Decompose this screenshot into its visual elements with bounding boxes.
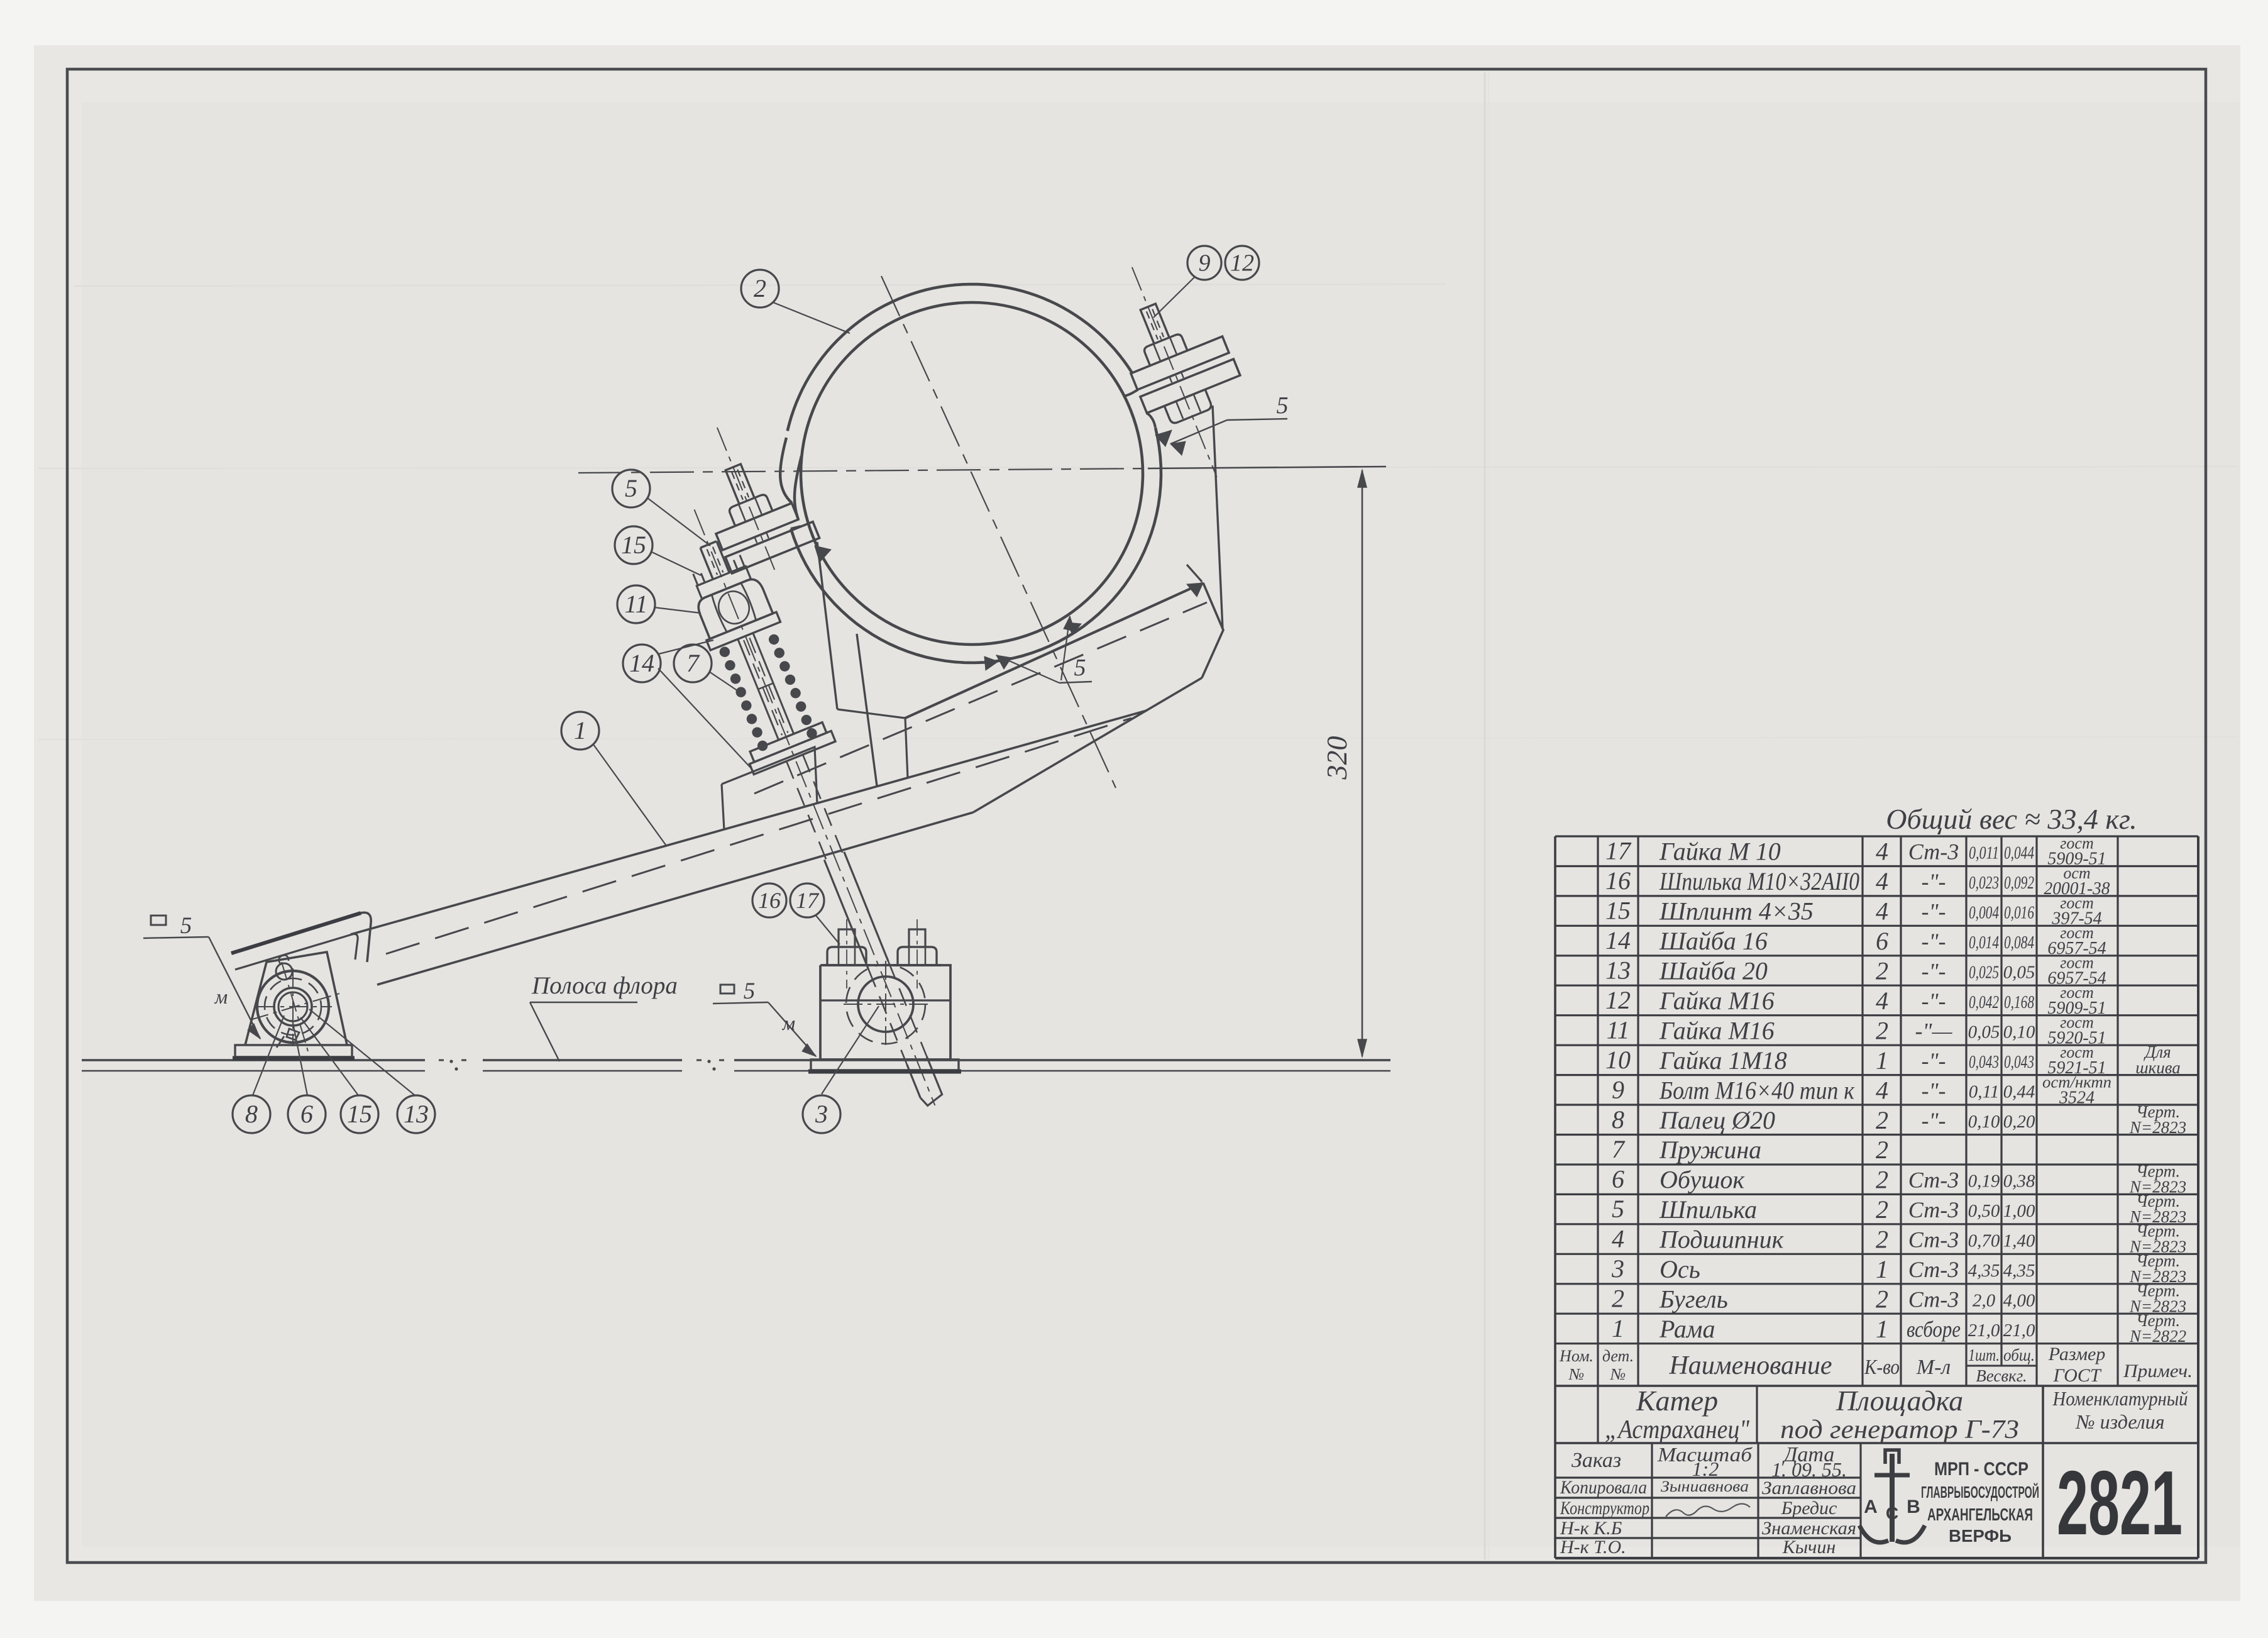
svg-text:Пружина: Пружина xyxy=(1659,1136,1761,1164)
svg-text:5: 5 xyxy=(180,913,192,939)
svg-text:1: 1 xyxy=(1876,1315,1888,1343)
svg-text:0,043: 0,043 xyxy=(1969,1052,1999,1072)
svg-text:№: № xyxy=(1610,1365,1626,1383)
svg-text:под генератор Г-73: под генератор Г-73 xyxy=(1780,1415,2019,1444)
svg-text:-"-: -"- xyxy=(1921,988,1946,1014)
svg-text:4: 4 xyxy=(1876,897,1888,926)
svg-text:Шайба 20: Шайба 20 xyxy=(1659,957,1768,985)
svg-text:Болт М16×40 тип к: Болт М16×40 тип к xyxy=(1659,1076,1854,1104)
svg-text:Бугель: Бугель xyxy=(1659,1285,1728,1314)
svg-text:0,023: 0,023 xyxy=(1969,873,1999,893)
svg-text:17: 17 xyxy=(796,888,820,913)
svg-text:15: 15 xyxy=(1605,897,1631,925)
svg-text:0,20: 0,20 xyxy=(2003,1112,2035,1132)
svg-text:К-во: К-во xyxy=(1864,1356,1900,1379)
svg-text:Рама: Рама xyxy=(1659,1315,1715,1343)
svg-text:14: 14 xyxy=(629,649,654,677)
svg-text:5: 5 xyxy=(1612,1195,1624,1223)
svg-text:0,014: 0,014 xyxy=(1969,932,1999,953)
svg-text:1: 1 xyxy=(574,716,586,744)
svg-text:Гайка М16: Гайка М16 xyxy=(1659,1016,1775,1044)
svg-text:Палец Ø20: Палец Ø20 xyxy=(1659,1106,1775,1134)
svg-text:2: 2 xyxy=(1876,1226,1888,1254)
svg-text:21,0: 21,0 xyxy=(1968,1320,2000,1341)
svg-text:0,092: 0,092 xyxy=(2004,873,2034,893)
svg-text:2: 2 xyxy=(1876,1106,1888,1134)
svg-text:Подшипник: Подшипник xyxy=(1659,1226,1784,1254)
svg-text:5: 5 xyxy=(1277,392,1289,419)
svg-text:5: 5 xyxy=(744,978,756,1004)
svg-text:всборе: всборе xyxy=(1907,1317,1961,1342)
svg-text:дет.: дет. xyxy=(1602,1347,1634,1365)
svg-text:В: В xyxy=(1907,1497,1920,1517)
svg-text:М-л: М-л xyxy=(1916,1356,1951,1379)
svg-text:Заказ: Заказ xyxy=(1572,1449,1621,1472)
svg-text:Весвкг.: Весвкг. xyxy=(1976,1366,2027,1385)
svg-text:16: 16 xyxy=(1605,866,1631,895)
svg-text:7: 7 xyxy=(1612,1135,1626,1163)
svg-text:0,11: 0,11 xyxy=(1969,1082,2000,1102)
svg-text:Ст-3: Ст-3 xyxy=(1908,1257,1959,1282)
svg-text:2: 2 xyxy=(1876,957,1888,985)
svg-text:1: 1 xyxy=(1876,1255,1888,1283)
svg-text:3: 3 xyxy=(1611,1254,1624,1283)
svg-text:Полоса флора: Полоса флора xyxy=(531,972,678,999)
svg-text:Катер: Катер xyxy=(1636,1385,1718,1417)
svg-text:7: 7 xyxy=(686,649,700,677)
svg-text:Шпилька: Шпилька xyxy=(1659,1195,1757,1224)
svg-text:17: 17 xyxy=(1605,837,1632,865)
svg-text:0,044: 0,044 xyxy=(2004,843,2034,863)
svg-text:9: 9 xyxy=(1199,250,1211,277)
svg-text:320: 320 xyxy=(1321,736,1353,780)
svg-text:-"—: -"— xyxy=(1915,1018,1952,1043)
svg-text:Примеч.: Примеч. xyxy=(2123,1361,2193,1381)
svg-text:4,35: 4,35 xyxy=(2003,1261,2035,1281)
svg-text:Копировала: Копировала xyxy=(1560,1477,1647,1498)
svg-text:8: 8 xyxy=(1612,1105,1624,1134)
svg-text:Общий вес ≈ 33,4 кг.: Общий вес ≈ 33,4 кг. xyxy=(1886,803,2137,835)
svg-text:Н-к К.Б: Н-к К.Б xyxy=(1560,1518,1622,1539)
svg-text:Гайка 1М18: Гайка 1М18 xyxy=(1659,1046,1787,1075)
svg-text:4: 4 xyxy=(1612,1225,1624,1253)
svg-text:Н-к Т.О.: Н-к Т.О. xyxy=(1560,1537,1626,1558)
svg-text:Зыниавнова: Зыниавнова xyxy=(1661,1478,1749,1495)
svg-text:Бредис: Бредис xyxy=(1781,1498,1837,1519)
svg-text:2: 2 xyxy=(754,274,766,302)
svg-text:№: № xyxy=(1568,1365,1585,1383)
svg-text:Заплавнова: Заплавнова xyxy=(1762,1478,1856,1498)
svg-text:1: 1 xyxy=(1876,1046,1888,1075)
svg-text:С: С xyxy=(1886,1503,1898,1523)
svg-text:Ст-3: Ст-3 xyxy=(1908,1227,1959,1253)
svg-text:4: 4 xyxy=(1876,838,1888,866)
svg-text:4: 4 xyxy=(1876,987,1888,1015)
svg-text:МРП - СССР: МРП - СССР xyxy=(1934,1459,2029,1480)
svg-text:2: 2 xyxy=(1876,1195,1888,1224)
svg-text:общ.: общ. xyxy=(2003,1346,2035,1364)
svg-text:0,10: 0,10 xyxy=(2003,1022,2035,1042)
svg-text:12: 12 xyxy=(1230,250,1254,277)
svg-text:14: 14 xyxy=(1605,926,1631,955)
svg-text:16: 16 xyxy=(758,888,781,913)
svg-text:Обушок: Обушок xyxy=(1660,1166,1744,1194)
svg-text:ГЛАВРЫБОСУДОСТРОЙ: ГЛАВРЫБОСУДОСТРОЙ xyxy=(1921,1483,2039,1502)
svg-text:Ось: Ось xyxy=(1660,1255,1700,1283)
svg-text:0,50: 0,50 xyxy=(1968,1201,2000,1221)
svg-text:0,011: 0,011 xyxy=(1969,843,1999,863)
svg-text:6: 6 xyxy=(300,1100,313,1128)
svg-text:5: 5 xyxy=(625,474,637,502)
svg-text:13: 13 xyxy=(1605,956,1631,985)
svg-text:15: 15 xyxy=(621,531,646,559)
svg-text:N=2822: N=2822 xyxy=(2129,1327,2186,1346)
svg-text:12: 12 xyxy=(1605,986,1631,1014)
svg-text:2: 2 xyxy=(1876,1136,1888,1164)
svg-text:2: 2 xyxy=(1876,1285,1888,1314)
svg-text:1:2: 1:2 xyxy=(1692,1458,1719,1480)
svg-text:ВЕРФЬ: ВЕРФЬ xyxy=(1949,1526,2012,1546)
svg-text:0,168: 0,168 xyxy=(2004,992,2034,1012)
svg-text:6: 6 xyxy=(1612,1165,1624,1193)
svg-text:„Астраханец": „Астраханец" xyxy=(1605,1415,1749,1444)
svg-text:Номенклатурный: Номенклатурный xyxy=(2052,1387,2188,1410)
svg-text:4,00: 4,00 xyxy=(2003,1291,2035,1311)
svg-text:0,042: 0,042 xyxy=(1969,992,1999,1012)
svg-text:13: 13 xyxy=(404,1100,429,1128)
svg-text:2,0: 2,0 xyxy=(1973,1291,1996,1311)
svg-text:0,043: 0,043 xyxy=(2004,1052,2034,1072)
svg-text:0,016: 0,016 xyxy=(2004,903,2034,923)
svg-text:21,0: 21,0 xyxy=(2003,1320,2035,1341)
svg-text:N=2823: N=2823 xyxy=(2129,1118,2186,1137)
svg-text:0,70: 0,70 xyxy=(1968,1231,2000,1251)
svg-text:0,084: 0,084 xyxy=(2004,932,2034,953)
svg-text:Конструктор: Конструктор xyxy=(1560,1498,1649,1519)
svg-text:1,00: 1,00 xyxy=(2003,1201,2035,1221)
svg-text:9: 9 xyxy=(1612,1075,1624,1104)
svg-text:Шайба 16: Шайба 16 xyxy=(1659,927,1768,955)
svg-text:Ст-3: Ст-3 xyxy=(1908,1168,1959,1193)
svg-text:-"-: -"- xyxy=(1921,1108,1946,1133)
svg-text:0,025: 0,025 xyxy=(1969,963,1999,983)
svg-text:1шт.: 1шт. xyxy=(1968,1346,2000,1364)
svg-text:4: 4 xyxy=(1876,1076,1888,1104)
svg-text:№ изделия: № изделия xyxy=(2075,1410,2164,1433)
svg-text:10: 10 xyxy=(1605,1046,1631,1074)
svg-text:Ст-3: Ст-3 xyxy=(1908,839,1959,865)
svg-text:Наименование: Наименование xyxy=(1668,1351,1832,1380)
svg-text:3: 3 xyxy=(815,1100,828,1128)
svg-text:1,40: 1,40 xyxy=(2003,1231,2035,1251)
svg-text:Ст-3: Ст-3 xyxy=(1908,1197,1959,1222)
svg-text:ГОСТ: ГОСТ xyxy=(2052,1365,2101,1386)
svg-text:Знаменская: Знаменская xyxy=(1762,1518,1856,1539)
svg-text:м: м xyxy=(214,985,228,1008)
svg-text:Размер: Размер xyxy=(2048,1344,2106,1364)
svg-text:м: м xyxy=(782,1012,795,1034)
svg-text:0,05: 0,05 xyxy=(2003,963,2035,983)
svg-text:0,004: 0,004 xyxy=(1969,903,1999,923)
svg-text:4,35: 4,35 xyxy=(1968,1261,2000,1281)
svg-text:Ст-3: Ст-3 xyxy=(1908,1287,1959,1312)
svg-text:11: 11 xyxy=(1606,1015,1629,1044)
svg-text:А: А xyxy=(1864,1497,1878,1517)
svg-text:2: 2 xyxy=(1612,1285,1624,1313)
svg-text:Гайка М 10: Гайка М 10 xyxy=(1659,838,1781,866)
svg-text:-"-: -"- xyxy=(1921,869,1946,894)
svg-text:Гайка М16: Гайка М16 xyxy=(1659,987,1775,1015)
svg-text:шкива: шкива xyxy=(2135,1058,2181,1077)
svg-text:Кычин: Кычин xyxy=(1782,1537,1836,1558)
svg-text:-"-: -"- xyxy=(1921,1078,1946,1103)
svg-text:8: 8 xyxy=(245,1100,258,1128)
svg-text:3524: 3524 xyxy=(2059,1088,2095,1107)
svg-text:11: 11 xyxy=(624,590,647,618)
svg-text:2821: 2821 xyxy=(2057,1452,2183,1554)
svg-text:1: 1 xyxy=(1612,1314,1624,1342)
svg-text:0,19: 0,19 xyxy=(1968,1171,2000,1192)
svg-text:0,05: 0,05 xyxy=(1968,1022,2000,1042)
svg-text:4: 4 xyxy=(1876,867,1888,895)
svg-text:15: 15 xyxy=(347,1100,372,1128)
svg-text:0,44: 0,44 xyxy=(2003,1082,2035,1102)
svg-text:0,38: 0,38 xyxy=(2003,1171,2035,1192)
svg-text:5: 5 xyxy=(1074,655,1086,681)
svg-text:АРХАНГЕЛЬСКАЯ: АРХАНГЕЛЬСКАЯ xyxy=(1927,1505,2033,1524)
svg-text:Ном.: Ном. xyxy=(1559,1347,1594,1365)
svg-text:Шплинт 4×35: Шплинт 4×35 xyxy=(1659,897,1814,926)
svg-text:2: 2 xyxy=(1876,1016,1888,1044)
svg-text:Площадка: Площадка xyxy=(1836,1385,1963,1417)
svg-text:-"-: -"- xyxy=(1921,959,1946,984)
svg-text:2: 2 xyxy=(1876,1166,1888,1194)
svg-text:-"-: -"- xyxy=(1921,899,1946,924)
svg-text:Шпилька М10×32АII0: Шпилька М10×32АII0 xyxy=(1659,867,1859,895)
svg-text:6: 6 xyxy=(1876,927,1888,955)
svg-text:-"-: -"- xyxy=(1921,1048,1946,1073)
svg-text:-"-: -"- xyxy=(1921,929,1946,954)
svg-text:0,10: 0,10 xyxy=(1968,1112,2000,1132)
